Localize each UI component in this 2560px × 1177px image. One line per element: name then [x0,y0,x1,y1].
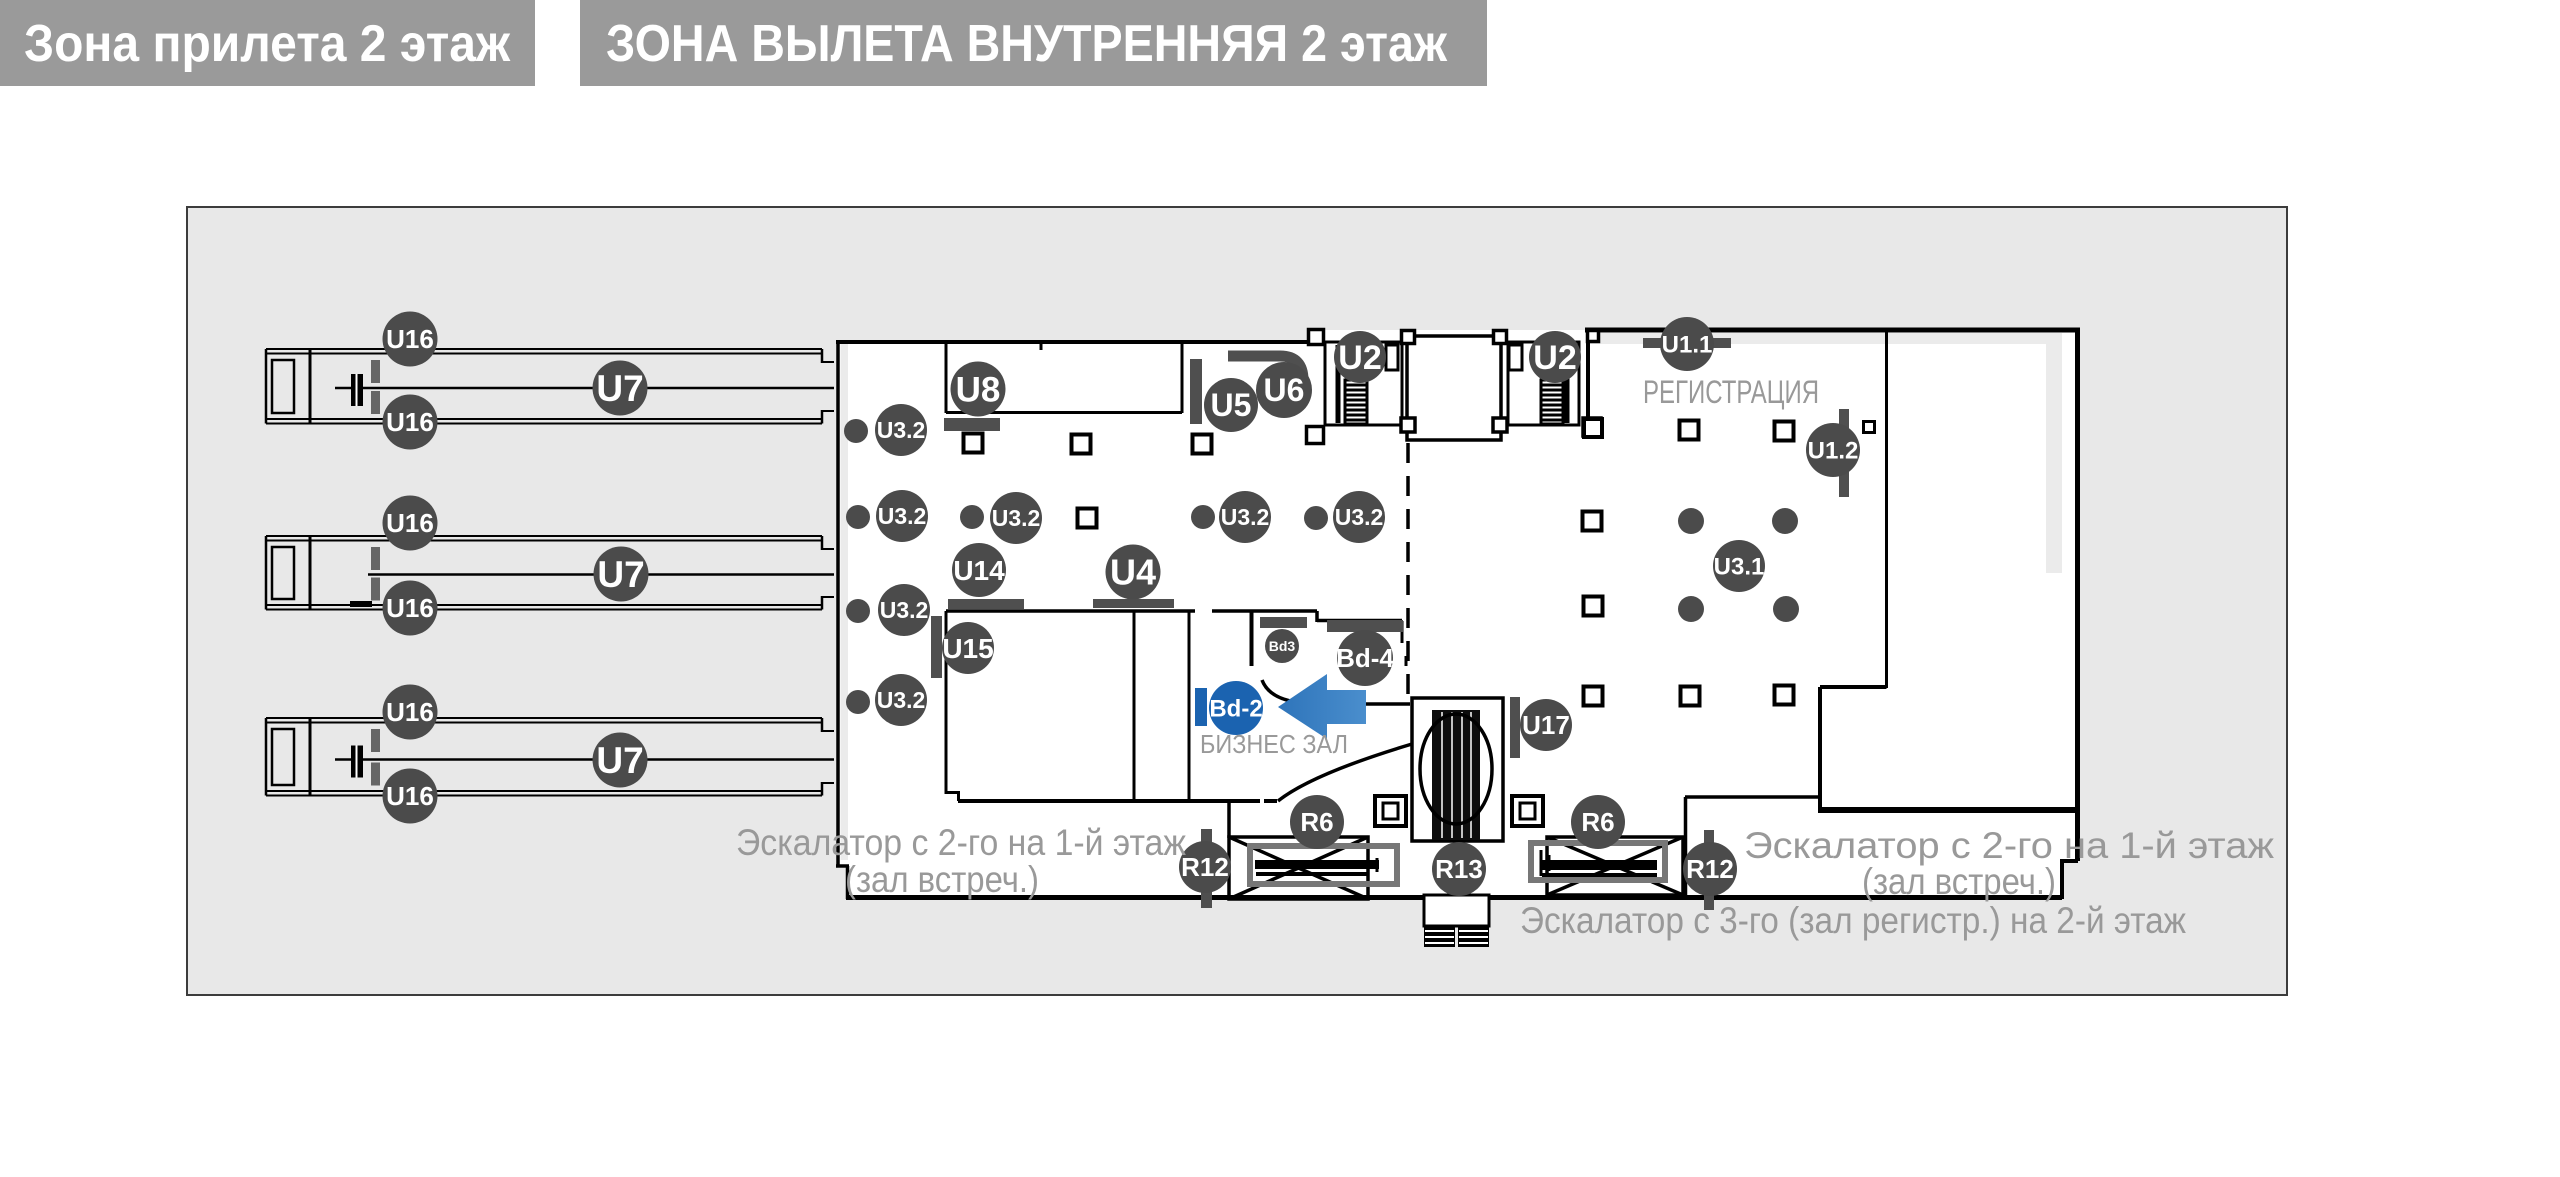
svg-text:U1.2: U1.2 [1808,437,1859,464]
svg-text:РЕГИСТРАЦИЯ: РЕГИСТРАЦИЯ [1643,374,1819,410]
svg-text:U7: U7 [596,740,643,781]
svg-text:R12: R12 [1686,854,1734,884]
svg-text:U16: U16 [386,781,434,811]
svg-text:U15: U15 [942,633,993,664]
svg-text:R6: R6 [1300,807,1333,837]
svg-text:(зал встреч.): (зал встреч.) [845,859,1039,900]
svg-text:U3.2: U3.2 [877,417,926,443]
svg-text:U3.2: U3.2 [880,597,929,623]
svg-text:U16: U16 [386,407,434,437]
svg-text:U2: U2 [1533,339,1576,377]
svg-text:U2: U2 [1338,339,1381,377]
svg-text:U6: U6 [1264,372,1305,408]
svg-text:U3.2: U3.2 [1335,504,1384,530]
svg-text:U3.2: U3.2 [992,505,1041,531]
svg-text:Эскалатор с 2-го на 1-й этаж: Эскалатор с 2-го на 1-й этаж [1744,825,2274,866]
svg-text:U16: U16 [386,697,434,727]
svg-text:U16: U16 [386,593,434,623]
svg-text:(зал встреч.): (зал встреч.) [1862,861,2056,902]
svg-text:ЗОНА ВЫЛЕТА ВНУТРЕННЯЯ 2 этаж: ЗОНА ВЫЛЕТА ВНУТРЕННЯЯ 2 этаж [606,15,1448,73]
svg-text:U16: U16 [386,324,434,354]
svg-text:U5: U5 [1211,387,1252,423]
svg-text:U3.2: U3.2 [877,687,926,713]
svg-text:U8: U8 [956,370,1001,409]
svg-text:U16: U16 [386,508,434,538]
svg-text:U7: U7 [597,554,644,595]
svg-text:Зона прилета 2 этаж: Зона прилета 2 этаж [24,15,511,73]
svg-text:R6: R6 [1581,807,1614,837]
svg-text:U17: U17 [1522,710,1570,740]
svg-text:Эскалатор с 2-го на 1-й этаж: Эскалатор с 2-го на 1-й этаж [736,822,1186,863]
svg-text:U4: U4 [1110,552,1156,593]
svg-text:R12: R12 [1181,852,1229,882]
svg-text:Bd3: Bd3 [1269,638,1296,654]
svg-text:Bd-2: Bd-2 [1209,695,1262,722]
svg-text:БИЗНЕС ЗАЛ: БИЗНЕС ЗАЛ [1200,729,1348,759]
svg-text:U1.1: U1.1 [1662,331,1713,358]
svg-text:U3.1: U3.1 [1714,553,1765,580]
svg-text:U3.2: U3.2 [1221,504,1270,530]
svg-text:U7: U7 [596,368,643,409]
svg-text:Bd-4: Bd-4 [1336,643,1394,673]
svg-text:U14: U14 [953,555,1005,586]
svg-text:U3.2: U3.2 [878,503,927,529]
svg-text:R13: R13 [1435,854,1483,884]
svg-text:Эскалатор с 3-го (зал регистр.: Эскалатор с 3-го (зал регистр.) на 2-й э… [1520,900,2186,941]
